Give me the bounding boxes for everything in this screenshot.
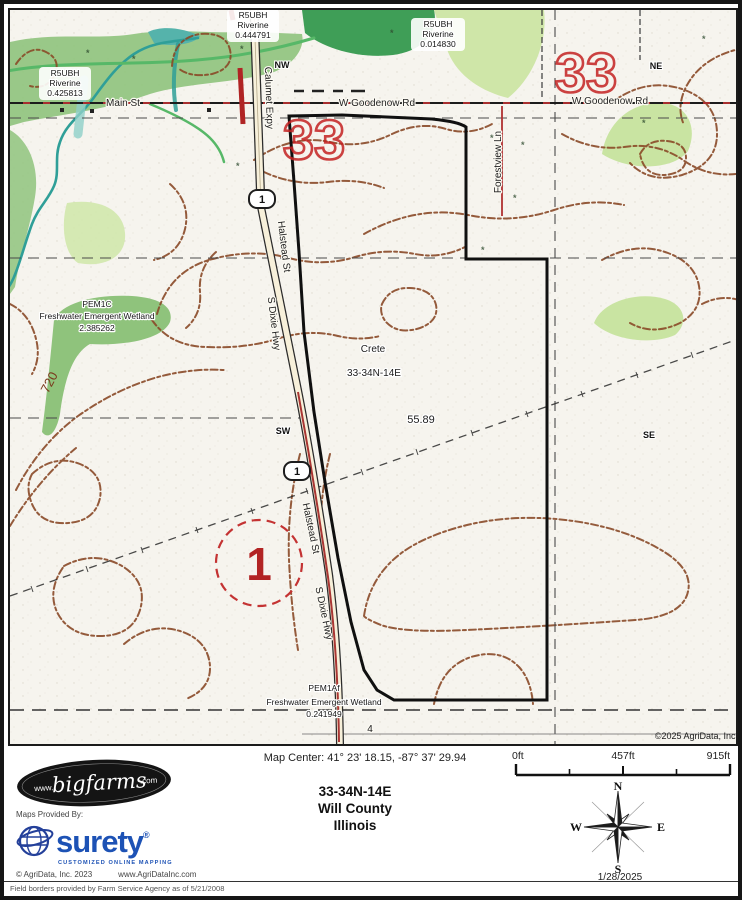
surety-wordmark: surety® xyxy=(56,824,150,859)
provider-website: www.AgriDataInc.com xyxy=(118,870,196,879)
field-borders-disclaimer: Field borders provided by Farm Service A… xyxy=(10,884,224,893)
wetland-label: 0.014830 xyxy=(420,39,456,49)
place-label-crete: Crete xyxy=(361,344,386,355)
svg-text:*: * xyxy=(513,193,517,203)
logo-bigfarms: bigfarms xyxy=(51,768,147,797)
township-label: 33-34N-14E xyxy=(347,368,401,379)
road-label-route4: 4 xyxy=(367,724,373,735)
svg-text:*: * xyxy=(86,48,90,58)
map-copyright: ©2025 AgriData, Inc. xyxy=(655,731,736,741)
topo-map: *** *** *** *** 33 33 1 1 1 xyxy=(10,10,736,744)
svg-text:*: * xyxy=(132,54,136,64)
compass-w: W xyxy=(570,820,582,834)
route-1-shield-lower: 1 xyxy=(294,466,300,478)
scale-bar: 0ft 457ft 915ft xyxy=(504,747,736,781)
wetland-label: PEM1C xyxy=(82,299,111,309)
section-number-left: 33 xyxy=(283,108,345,171)
wetland-label: R5UBH xyxy=(424,19,453,29)
corner-label-sw: SW xyxy=(276,426,291,436)
footer-divider xyxy=(4,881,738,882)
scale-tick-0: 0ft xyxy=(512,750,524,762)
wetland-label: R5UBH xyxy=(51,68,80,78)
scale-tick-457: 457ft xyxy=(611,750,634,762)
registered-mark: ® xyxy=(143,830,150,840)
road-label-calumet-expy: Calumet Expy xyxy=(262,67,275,130)
svg-text:*: * xyxy=(702,34,706,44)
corner-label-ne: NE xyxy=(650,61,663,71)
provider-block: Maps Provided By: surety® CUSTOMIZED ONL… xyxy=(16,810,236,879)
wetland-label: Riverine xyxy=(422,29,453,39)
wetland-label: 0.241949 xyxy=(306,709,342,719)
surety-globe-icon xyxy=(16,821,56,859)
svg-text:*: * xyxy=(390,28,394,38)
corner-label-nw: NW xyxy=(275,60,290,70)
map-canvas: *** *** *** *** 33 33 1 1 1 xyxy=(8,8,738,746)
wetland-label: Riverine xyxy=(49,78,80,88)
section-number-right: 33 xyxy=(555,41,617,104)
wetland-label: Freshwater Emergent Wetland xyxy=(39,311,154,321)
wetland-label: Freshwater Emergent Wetland xyxy=(266,697,381,707)
map-center-coordinates: Map Center: 41° 23' 18.15, -87° 37' 29.9… xyxy=(250,752,480,764)
svg-text:*: * xyxy=(240,44,244,54)
surety-tagline: CUSTOMIZED ONLINE MAPPING xyxy=(58,860,236,866)
corner-label-se: SE xyxy=(643,430,655,440)
acreage-label: 55.89 xyxy=(407,414,435,426)
compass-n: N xyxy=(614,782,623,793)
title-county: Will County xyxy=(255,800,455,817)
logo-www: www. xyxy=(33,783,54,793)
svg-text:*: * xyxy=(642,118,646,128)
svg-text:*: * xyxy=(481,245,485,255)
logo-com: .com xyxy=(140,776,158,786)
report-page: *** *** *** *** 33 33 1 1 1 xyxy=(0,0,742,900)
route-1-shield-upper: 1 xyxy=(259,194,265,206)
wetland-label: 0.444791 xyxy=(235,30,271,40)
scale-tick-915: 915ft xyxy=(707,750,730,762)
road-label-main-st: Main St xyxy=(106,98,140,109)
provider-copyright: © AgriData, Inc. 2023 xyxy=(16,870,92,879)
bigfarms-logo: www. bigfarms .com xyxy=(12,756,176,810)
wetland-label: 2.385262 xyxy=(79,323,115,333)
maps-provided-by-label: Maps Provided By: xyxy=(16,810,236,819)
svg-text:*: * xyxy=(521,140,525,150)
title-state: Illinois xyxy=(255,817,455,834)
wetland-label: R5UBH xyxy=(239,10,268,20)
field-number: 1 xyxy=(246,538,272,590)
wetland-label: PEM1Af xyxy=(308,683,340,693)
road-label-goodenow-right: W Goodenow Rd xyxy=(572,96,648,107)
svg-text:*: * xyxy=(236,161,240,171)
road-label-forestview: Forestview Ln xyxy=(493,131,504,193)
title-township: 33-34N-14E xyxy=(255,783,455,800)
compass-rose: N W E S xyxy=(566,782,670,874)
wetland-label: Riverine xyxy=(237,20,268,30)
road-label-goodenow-left: W Goodenow Rd xyxy=(339,98,415,109)
wetland-label: 0.425813 xyxy=(47,88,83,98)
report-title: 33-34N-14E Will County Illinois xyxy=(255,783,455,834)
compass-e: E xyxy=(657,820,665,834)
